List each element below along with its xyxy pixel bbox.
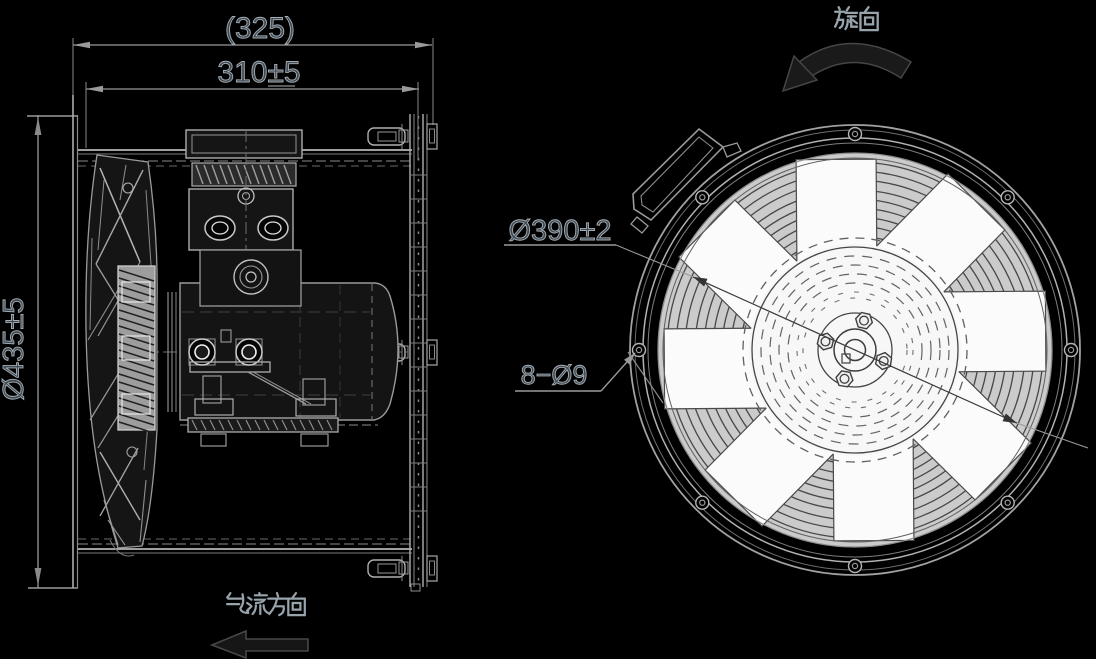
svg-text:310±5: 310±5 — [217, 56, 300, 89]
svg-text:Ø435±5: Ø435±5 — [0, 298, 30, 401]
svg-text:8−Ø9: 8−Ø9 — [521, 360, 588, 390]
svg-text:(325): (325) — [225, 12, 295, 45]
svg-text:Ø390±2: Ø390±2 — [509, 215, 612, 247]
